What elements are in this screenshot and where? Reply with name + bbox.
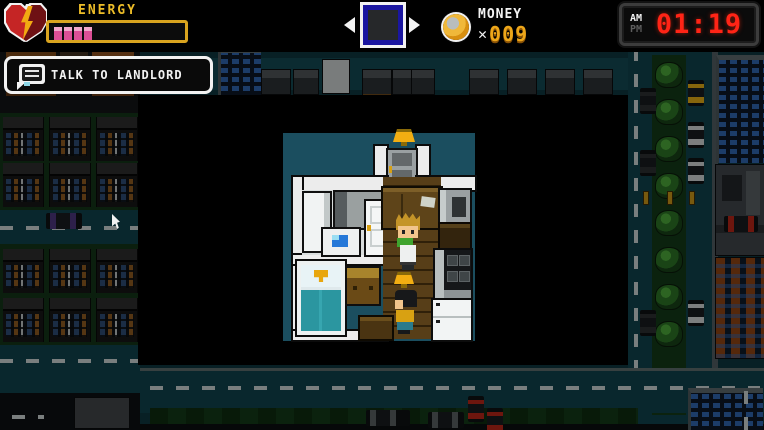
energy-segments bbox=[54, 27, 92, 40]
road-left bbox=[0, 210, 140, 244]
door-panel bbox=[392, 153, 412, 166]
blue-window-building bbox=[716, 55, 764, 163]
focus-overlay bbox=[138, 95, 628, 365]
tree bbox=[656, 322, 682, 346]
speech-bubble-lines bbox=[22, 67, 42, 81]
coin-icon bbox=[443, 14, 469, 40]
road-dashes bbox=[150, 386, 760, 390]
clock-time: 01:19 bbox=[642, 9, 756, 40]
tree bbox=[656, 248, 682, 272]
blue-window-building bbox=[688, 388, 763, 430]
gray-building bbox=[716, 165, 764, 255]
burner bbox=[460, 256, 469, 265]
tree bbox=[656, 211, 682, 235]
street-post bbox=[644, 192, 648, 204]
gray-car bbox=[366, 410, 410, 426]
speech-bubble-accent bbox=[24, 82, 30, 86]
energy-label: ENERGY bbox=[78, 3, 137, 18]
energy-segment bbox=[74, 27, 82, 40]
house bbox=[3, 163, 43, 207]
toilet bbox=[323, 229, 359, 255]
wall bbox=[293, 177, 387, 190]
character-player bbox=[393, 290, 418, 334]
player-face bbox=[395, 300, 403, 309]
purple-car bbox=[46, 213, 82, 229]
building-detail bbox=[746, 171, 760, 215]
floor-lamp-base bbox=[401, 284, 407, 288]
drawer-knob bbox=[353, 286, 357, 290]
tree-median bbox=[652, 55, 686, 415]
small-building bbox=[75, 398, 129, 428]
bed bbox=[297, 261, 345, 335]
rooftop-unit bbox=[393, 70, 411, 94]
fridge-handle bbox=[436, 320, 440, 323]
fridge-handle bbox=[436, 303, 440, 306]
red-car bbox=[487, 408, 503, 430]
burner bbox=[448, 272, 457, 281]
tree bbox=[656, 285, 682, 309]
tree bbox=[656, 100, 682, 124]
road-dashes bbox=[0, 359, 140, 363]
tree bbox=[656, 137, 682, 161]
fridge bbox=[433, 300, 471, 340]
house bbox=[3, 117, 43, 161]
white-car bbox=[688, 158, 704, 184]
house bbox=[3, 298, 43, 342]
landlord-body bbox=[400, 245, 416, 265]
white-car bbox=[688, 122, 704, 148]
red-car bbox=[468, 396, 484, 422]
burner bbox=[460, 272, 469, 281]
pillow-emblem bbox=[314, 270, 328, 282]
blue-window-building bbox=[218, 48, 261, 100]
red-car bbox=[724, 216, 758, 232]
player-shirt bbox=[396, 310, 414, 322]
microwave bbox=[440, 190, 470, 224]
stove-drawer bbox=[444, 290, 471, 300]
water-highlight bbox=[332, 235, 339, 240]
rooftop-unit bbox=[262, 70, 290, 94]
speech-bubble-icon bbox=[19, 64, 45, 84]
door-knob bbox=[367, 225, 371, 231]
house bbox=[97, 249, 137, 293]
road-dashes bbox=[744, 388, 748, 430]
house bbox=[97, 117, 137, 161]
black-car bbox=[640, 310, 656, 336]
selector-right-arrow-icon[interactable] bbox=[409, 17, 420, 33]
rooftop-unit bbox=[508, 70, 536, 94]
blanket-seam bbox=[319, 290, 322, 331]
top-street-band bbox=[140, 45, 628, 95]
rooftop-unit bbox=[363, 70, 391, 97]
gray-car bbox=[428, 412, 464, 428]
house bbox=[50, 163, 90, 207]
selector-frame[interactable] bbox=[360, 2, 406, 48]
money-value: 009 bbox=[489, 22, 528, 46]
rooftop-unit bbox=[584, 70, 612, 94]
landlord-face bbox=[398, 226, 418, 238]
residential-block bbox=[0, 113, 140, 210]
times-sign: ✕ bbox=[478, 25, 487, 43]
game-screen: ENERGY MONEY ✕ 009 AM PM 01:19 TALK bbox=[0, 0, 764, 430]
house bbox=[50, 249, 90, 293]
tree bbox=[656, 63, 682, 87]
appliance-door bbox=[452, 197, 466, 217]
clock-display: AM PM 01:19 bbox=[619, 3, 759, 46]
clock-meridiem: AM PM bbox=[630, 14, 642, 35]
house bbox=[97, 298, 137, 342]
prompt-label: TALK TO LANDLORD bbox=[51, 68, 183, 82]
player-feet bbox=[398, 330, 410, 334]
energy-segment bbox=[64, 27, 72, 40]
road-bottom bbox=[140, 368, 764, 413]
hud-bar: ENERGY MONEY ✕ 009 AM PM 01:19 bbox=[0, 0, 764, 52]
door-handle bbox=[389, 166, 392, 173]
appliance-trim bbox=[440, 190, 446, 224]
eye bbox=[402, 230, 405, 234]
eye bbox=[411, 230, 414, 234]
bottom-left-block bbox=[0, 393, 140, 430]
nightstand bbox=[347, 268, 379, 304]
player-pants bbox=[397, 322, 413, 330]
ceiling-lamp-icon bbox=[393, 129, 415, 142]
landlord-feet bbox=[402, 265, 414, 270]
house bbox=[50, 117, 90, 161]
clock-am: AM bbox=[630, 14, 642, 24]
building-window bbox=[722, 175, 742, 201]
black-car bbox=[640, 88, 656, 114]
paper-sheet bbox=[420, 196, 435, 208]
apartment-interior bbox=[283, 133, 475, 341]
kitchen-counter bbox=[440, 224, 470, 250]
street-post bbox=[668, 192, 672, 204]
energy-segment bbox=[84, 27, 92, 40]
rooftop-unit bbox=[412, 70, 434, 94]
white-car bbox=[688, 300, 704, 326]
house bbox=[50, 298, 90, 342]
cabinet bbox=[360, 317, 392, 339]
selector-slot-empty bbox=[368, 10, 398, 40]
selector-left-arrow-icon[interactable] bbox=[344, 17, 355, 33]
ceiling-lamp-base bbox=[401, 142, 407, 146]
house bbox=[97, 163, 137, 207]
talk-to-landlord-button[interactable]: TALK TO LANDLORD bbox=[4, 56, 213, 94]
rooftop-unit bbox=[294, 70, 318, 94]
stove-side bbox=[435, 250, 444, 300]
road-bottom-left bbox=[0, 345, 140, 393]
white-structure bbox=[323, 60, 349, 93]
fridge-seam bbox=[433, 316, 471, 318]
black-car bbox=[640, 150, 656, 176]
rooftop-unit bbox=[546, 70, 574, 94]
energy-segment bbox=[54, 27, 62, 40]
taxi-car bbox=[688, 80, 704, 106]
rooftop-unit bbox=[470, 70, 498, 94]
character-landlord[interactable] bbox=[396, 212, 420, 270]
road-dashes bbox=[12, 415, 44, 419]
money-label: MONEY bbox=[478, 7, 522, 22]
residential-block bbox=[0, 244, 140, 345]
orange-building bbox=[716, 258, 764, 358]
stove bbox=[435, 250, 471, 300]
drawer-knob bbox=[369, 286, 373, 290]
street-post bbox=[690, 192, 694, 204]
heart-energy-icon bbox=[6, 5, 50, 45]
money-amount: ✕ 009 bbox=[478, 22, 528, 46]
clock-pm: PM bbox=[630, 25, 642, 35]
energy-bar bbox=[46, 20, 188, 43]
house bbox=[3, 249, 43, 293]
bed-pillow bbox=[301, 265, 341, 287]
burner bbox=[448, 256, 457, 265]
